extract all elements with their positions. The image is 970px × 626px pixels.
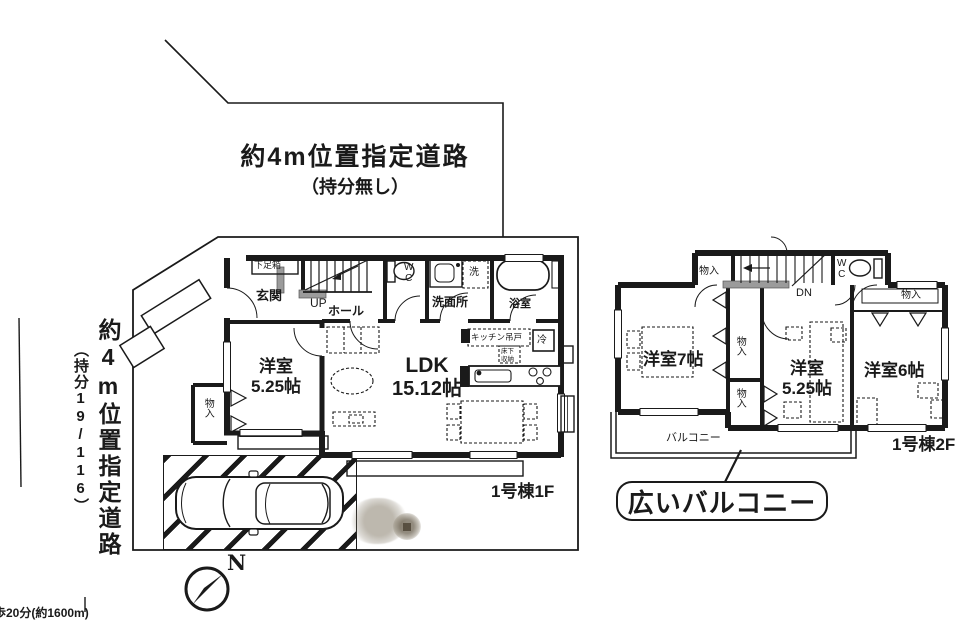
bedroom7-label: 洋室7帖	[643, 350, 703, 369]
walk-time-note: 歩20分(約1600m)	[0, 607, 89, 620]
bedroom1f-size: 5.25帖	[231, 377, 321, 397]
ldk-label: LDK 15.12帖	[377, 354, 477, 401]
bathtub	[497, 260, 549, 290]
floor2-caption: 1号棟2F	[892, 435, 955, 454]
plan-linework	[0, 0, 970, 626]
left-road-name: 約4m位置指定道路	[91, 318, 125, 558]
floor2-walls	[618, 253, 945, 428]
entrance-label: 玄関	[256, 289, 282, 304]
bathroom-label: 浴室	[509, 298, 531, 310]
floor1-stairs	[277, 258, 372, 298]
shoe-box-label: 下足箱	[254, 260, 281, 270]
top-road-share-label: （持分無し）	[230, 177, 480, 197]
closet-label-2f-mid1: 物入	[734, 336, 745, 356]
bedroom6-label: 洋室6帖	[864, 361, 924, 380]
balcony-railing	[611, 412, 856, 458]
wide-balcony-callout: 広いバルコニー	[616, 481, 828, 521]
top-road-label: 約4m位置指定道路	[230, 143, 480, 171]
car-icon	[176, 471, 343, 535]
bedroom1f-name: 洋室	[231, 357, 321, 377]
ldk-size: 15.12帖	[377, 378, 477, 401]
porch	[238, 436, 328, 449]
closet-label-2f-hall: 物入	[699, 266, 719, 277]
bedroom525-size: 5.25帖	[762, 379, 852, 399]
bedroom1f-label: 洋室 5.25帖	[231, 357, 321, 396]
bedroom525-name: 洋室	[762, 359, 852, 379]
floorplan-page: 約4m位置指定道路 （持分無し） 約4m位置指定道路 （持分19/116） 歩2…	[0, 0, 970, 626]
stairs-up-label: UP	[310, 297, 327, 310]
closet-label-1f: 物入	[202, 398, 213, 418]
floor2-stairs	[723, 252, 828, 288]
fridge-label: 冷	[537, 335, 547, 346]
balcony-label: バルコニー	[666, 432, 721, 444]
wc-label-2f: WC	[836, 258, 847, 280]
compass-icon	[186, 568, 228, 610]
terrace-step	[347, 461, 523, 476]
compass-north-label: N	[227, 551, 246, 575]
closet-label-2f-mid2: 物入	[734, 388, 745, 408]
kitchen-cabinet-label: キッチン吊戸	[471, 333, 522, 343]
toilet-bowl	[850, 260, 871, 276]
left-road-share: （持分19/116）	[70, 342, 91, 558]
closet-hanger	[862, 289, 938, 303]
closet-label-2f-right: 物入	[901, 290, 921, 301]
floor-storage-label: 床下収納	[501, 348, 516, 364]
entrance-step	[141, 280, 210, 335]
left-road-label: 約4m位置指定道路 （持分19/116）	[70, 318, 125, 558]
closet-door-marks	[231, 390, 246, 432]
bedroom525-label: 洋室 5.25帖	[762, 359, 852, 398]
toilet-tank	[874, 259, 882, 278]
callout-leader-line	[724, 450, 741, 484]
stamp-mark-small	[393, 513, 421, 540]
wc-label-1f: WC	[403, 262, 414, 284]
washroom-label: 洗面所	[432, 296, 468, 309]
stairs-down-label: DN	[796, 287, 812, 299]
hall-label: ホール	[328, 305, 364, 318]
floor1-caption: 1号棟1F	[491, 482, 554, 501]
entrance-step	[120, 326, 164, 367]
ldk-name: LDK	[377, 354, 477, 378]
washer-label: 洗	[469, 267, 479, 278]
